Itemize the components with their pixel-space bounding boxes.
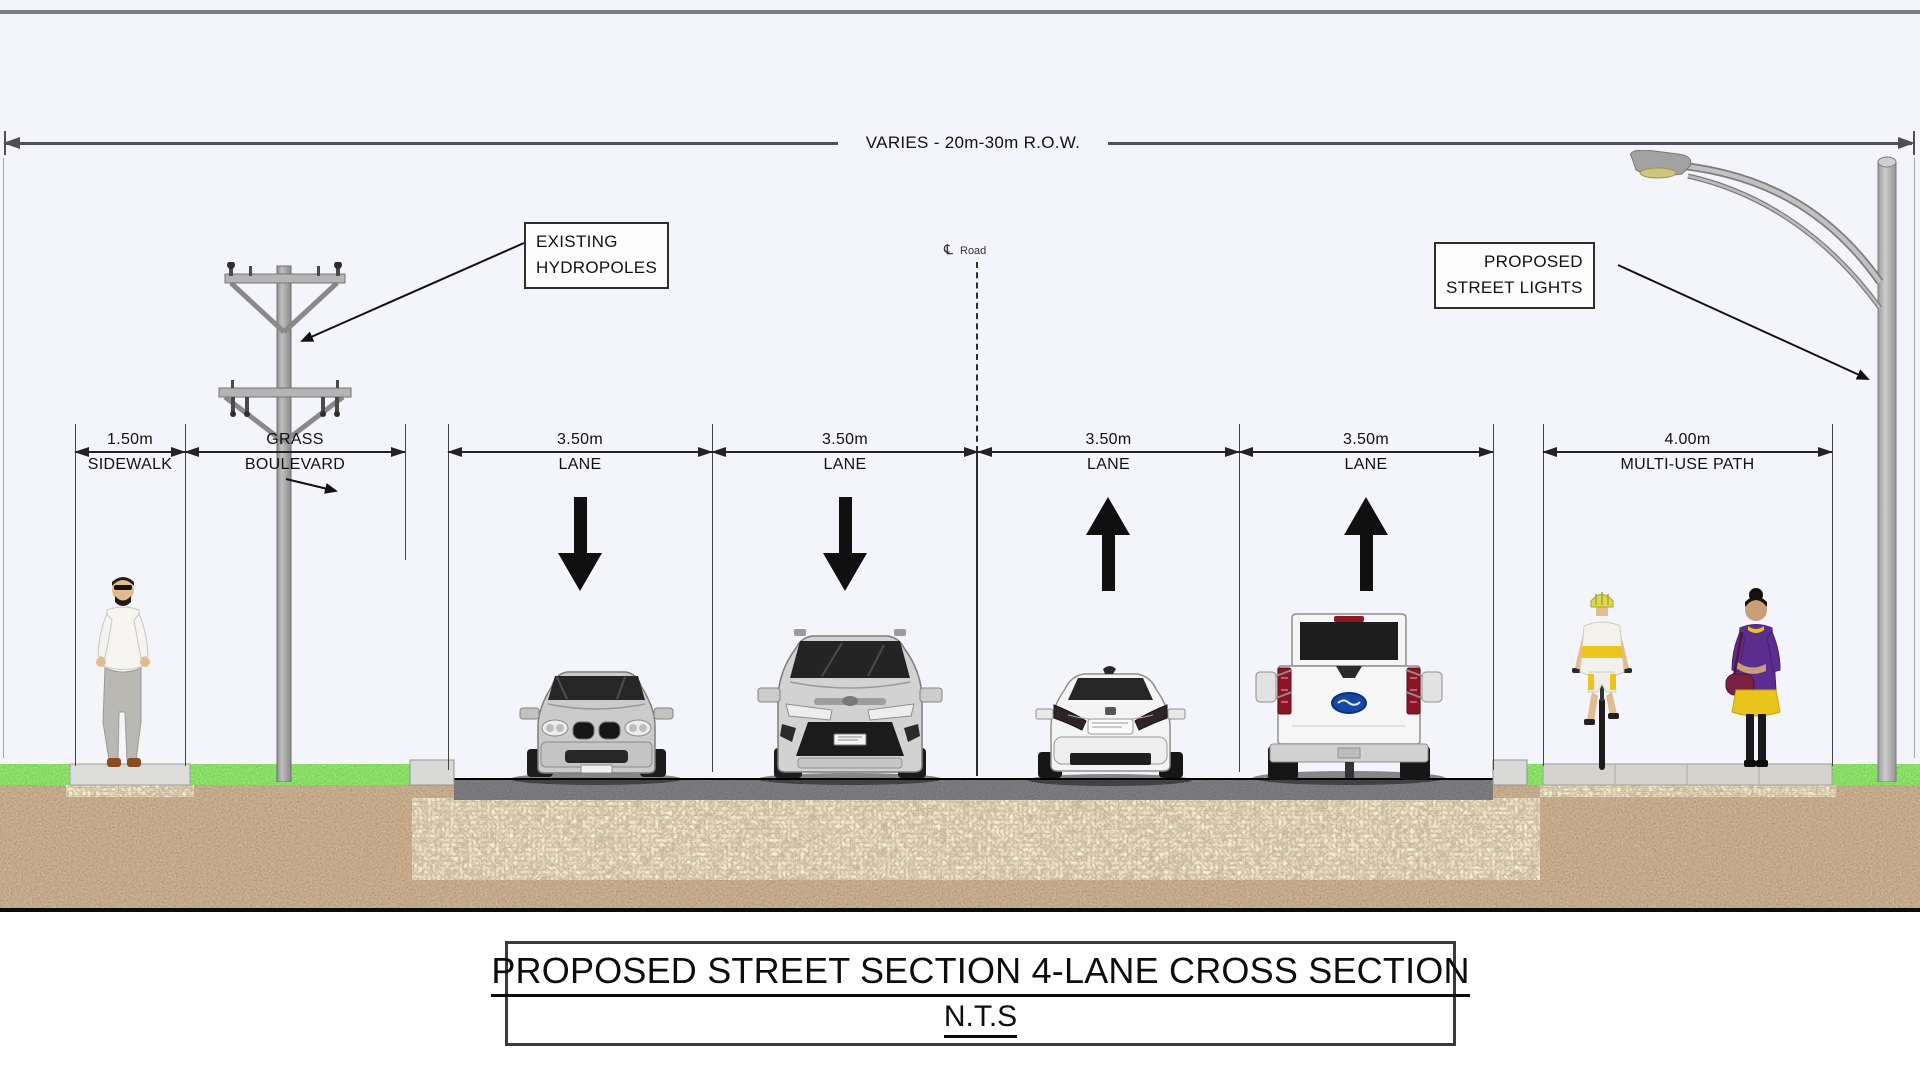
dimension-label: MULTI-USE PATH — [1543, 454, 1832, 475]
dim-arrow-right-icon — [1818, 447, 1833, 457]
extension-line — [1832, 424, 1833, 766]
dimension-label: LANE — [448, 454, 712, 475]
hydro-pole — [215, 262, 355, 787]
dimension-label: SIDEWALK — [75, 454, 185, 475]
row-boundary-right — [1914, 158, 1915, 758]
gravel-base — [412, 798, 1540, 880]
extension-line — [1493, 424, 1494, 770]
luminaire-lens — [1640, 168, 1676, 178]
road-centerline-extension — [976, 452, 978, 776]
extension-line — [185, 424, 186, 766]
dimension-boulevard: GRASS BOULEVARD — [185, 429, 405, 475]
drawing-canvas: VARIES - 20m-30m R.O.W. — [0, 0, 1920, 1080]
dimension-lane-2: 3.50m LANE — [712, 429, 978, 475]
earth-subgrade — [0, 782, 1920, 910]
dim-arrow-left-icon — [1542, 447, 1557, 457]
dim-arrow-right-icon — [391, 447, 406, 457]
dimension-value: GRASS — [185, 429, 405, 450]
row-dimension-line-right — [1108, 142, 1912, 145]
dimension-line — [185, 451, 405, 453]
row-boundary-left — [3, 158, 4, 758]
extension-line — [712, 424, 713, 772]
sidewalk-gravel-bed — [66, 785, 194, 797]
dim-arrow-right-icon — [1479, 447, 1494, 457]
callout-proposed-street-lights: PROPOSED STREET LIGHTS — [1434, 242, 1595, 309]
dimension-line — [1543, 451, 1832, 453]
dimension-multi-use-path: 4.00m MULTI-USE PATH — [1543, 429, 1832, 475]
drawing-sheet: VARIES - 20m-30m R.O.W. — [0, 0, 1920, 912]
road-centerline-dashed — [976, 262, 978, 452]
dim-arrow-left-icon — [1238, 447, 1253, 457]
grass-strip-right-curb — [1527, 764, 1543, 785]
grass-strip-left-edge — [0, 764, 75, 785]
dimension-label: BOULEVARD — [185, 454, 405, 475]
dimension-line — [448, 451, 712, 453]
dimension-line — [712, 451, 978, 453]
extension-line — [1543, 424, 1544, 766]
dimension-line — [75, 451, 185, 453]
drawing-scale-note: N.T.S — [944, 1000, 1017, 1038]
pedestrian-woman — [1712, 586, 1790, 778]
extension-line — [448, 424, 449, 770]
dimension-lane-3: 3.50m LANE — [978, 429, 1239, 475]
dimension-line — [1239, 451, 1493, 453]
ground-baseline — [0, 908, 1920, 912]
dimension-label: LANE — [978, 454, 1239, 475]
dim-arrow-left-icon — [74, 447, 89, 457]
dimension-lane-4: 3.50m LANE — [1239, 429, 1493, 475]
dim-arrow-left-icon — [184, 447, 199, 457]
dimension-value: 3.50m — [448, 429, 712, 450]
vehicle-pickup-rear — [1248, 606, 1450, 793]
dimension-label: LANE — [712, 454, 978, 475]
dimension-value: 4.00m — [1543, 429, 1832, 450]
extension-line — [405, 424, 406, 560]
dim-arrow-left-icon — [447, 447, 462, 457]
pedestrian-man — [85, 572, 162, 777]
dimension-value: 1.50m — [75, 429, 185, 450]
lane-1-direction-down-icon — [558, 497, 602, 591]
extension-line — [75, 424, 76, 766]
vehicle-minivan-front — [752, 616, 948, 793]
callout-existing-hydropoles: EXISTING HYDROPOLES — [524, 222, 669, 289]
sheet-top-border — [0, 10, 1920, 14]
centerline-symbol-icon: ℄ — [944, 241, 953, 258]
dimension-value: 3.50m — [1239, 429, 1493, 450]
lane-4-direction-up-icon — [1344, 497, 1388, 591]
dimension-lane-1: 3.50m LANE — [448, 429, 712, 475]
row-tick-right — [1913, 131, 1915, 155]
dim-arrow-left-icon — [711, 447, 726, 457]
row-dimension-line-left — [6, 142, 838, 145]
drawing-title: PROPOSED STREET SECTION 4-LANE CROSS SEC… — [491, 950, 1469, 997]
dimension-line — [978, 451, 1239, 453]
cyclist — [1570, 584, 1634, 779]
vehicle-sedan-front — [505, 646, 688, 793]
dimension-value: 3.50m — [978, 429, 1239, 450]
road-centerline-label: ℄ Road — [944, 241, 986, 258]
curb-right — [1493, 760, 1527, 785]
dimension-label: LANE — [1239, 454, 1493, 475]
lane-3-direction-up-icon — [1086, 497, 1130, 591]
vehicle-sedan-rear — [1024, 653, 1197, 793]
row-tick-left — [4, 131, 6, 155]
title-block: PROPOSED STREET SECTION 4-LANE CROSS SEC… — [505, 941, 1456, 1046]
dimension-value: 3.50m — [712, 429, 978, 450]
lane-2-direction-down-icon — [823, 497, 867, 591]
dim-arrow-left-icon — [977, 447, 992, 457]
extension-line — [1239, 424, 1240, 772]
row-dimension-label: VARIES - 20m-30m R.O.W. — [838, 133, 1108, 153]
dimension-sidewalk: 1.50m SIDEWALK — [75, 429, 185, 475]
